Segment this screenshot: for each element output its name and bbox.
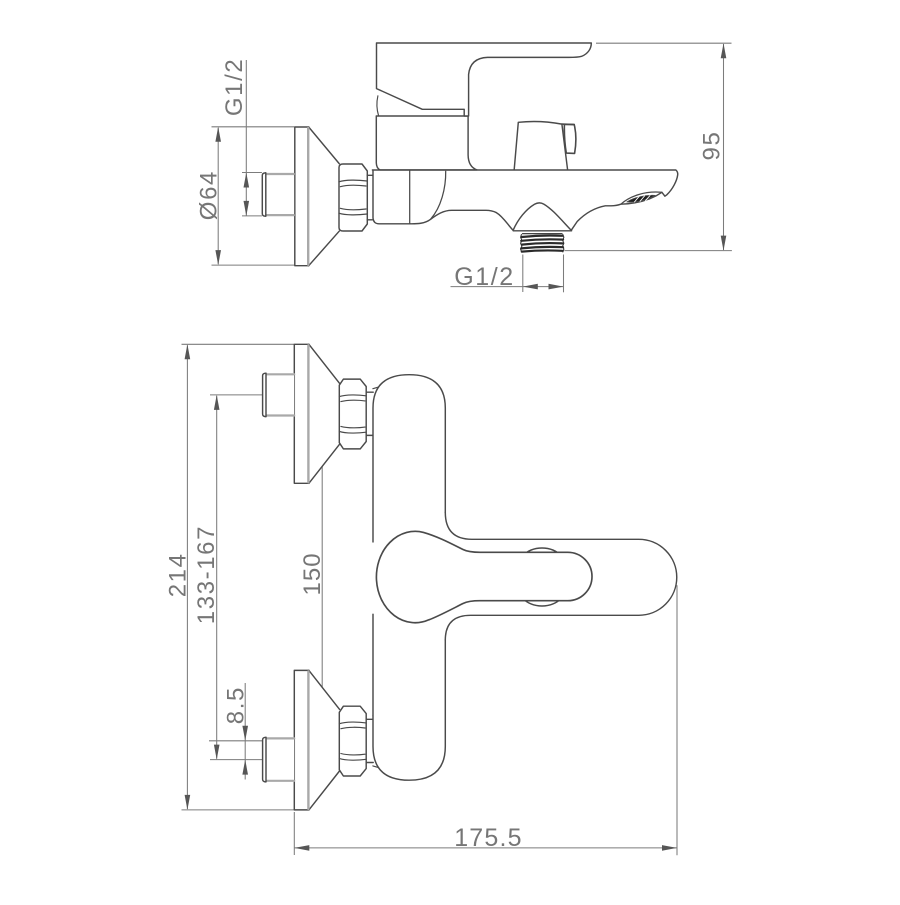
svg-text:Ø64: Ø64: [196, 170, 223, 220]
svg-text:214: 214: [164, 552, 191, 597]
svg-text:175.5: 175.5: [454, 824, 523, 852]
svg-text:95: 95: [698, 131, 725, 161]
svg-text:G1/2: G1/2: [454, 263, 515, 291]
svg-text:G1/2: G1/2: [221, 58, 248, 116]
svg-text:8.5: 8.5: [223, 686, 250, 724]
svg-text:133-167: 133-167: [193, 525, 220, 624]
svg-text:150: 150: [299, 552, 326, 595]
